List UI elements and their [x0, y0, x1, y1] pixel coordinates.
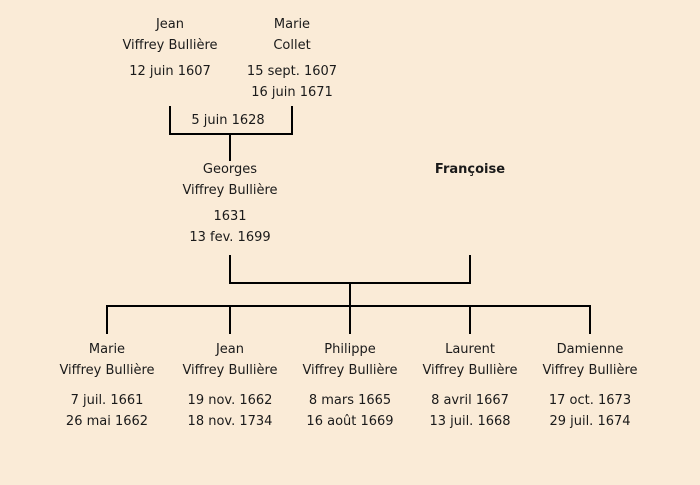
connector-francoise-drop: [469, 255, 471, 284]
connector-marie-collet-drop: [291, 106, 293, 135]
person-birth-date: 19 nov. 1662: [165, 390, 295, 411]
person-first-name: Jean: [110, 14, 230, 35]
person-last-name: Viffrey Bullière: [405, 360, 535, 381]
person-last-name: Collet: [232, 35, 352, 56]
person-first-name: Françoise: [400, 159, 540, 180]
connector-couple-to-children: [349, 284, 351, 307]
person-birth-date: 12 juin 1607: [110, 61, 230, 82]
connector-georges-drop: [229, 255, 231, 284]
person-node-francoise[interactable]: Françoise: [400, 159, 540, 180]
person-node-child-laurent[interactable]: Laurent Viffrey Bullière 8 avril 1667 13…: [405, 339, 535, 432]
person-death-date: 16 juin 1671: [232, 82, 352, 103]
person-last-name: Viffrey Bullière: [165, 360, 295, 381]
person-first-name: Georges: [160, 159, 300, 180]
person-node-georges[interactable]: Georges Viffrey Bullière 1631 13 fev. 16…: [160, 159, 300, 248]
person-first-name: Marie: [232, 14, 352, 35]
person-birth-date: 17 oct. 1673: [525, 390, 655, 411]
person-birth-date: 15 sept. 1607: [232, 61, 352, 82]
person-last-name: Viffrey Bullière: [285, 360, 415, 381]
person-birth-date: 8 mars 1665: [285, 390, 415, 411]
person-first-name: Philippe: [285, 339, 415, 360]
person-death-date: 26 mai 1662: [42, 411, 172, 432]
family-tree-canvas: Jean Viffrey Bullière 12 juin 1607 Marie…: [0, 0, 700, 485]
person-last-name: Viffrey Bullière: [42, 360, 172, 381]
person-death-date: 18 nov. 1734: [165, 411, 295, 432]
person-birth-date: 7 juil. 1661: [42, 390, 172, 411]
person-first-name: Jean: [165, 339, 295, 360]
person-death-date: 29 juil. 1674: [525, 411, 655, 432]
person-death-date: 13 juil. 1668: [405, 411, 535, 432]
marriage-date-label[interactable]: 5 juin 1628: [167, 112, 289, 130]
person-last-name: Viffrey Bullière: [110, 35, 230, 56]
person-last-name: Viffrey Bullière: [525, 360, 655, 381]
person-node-jean-sr[interactable]: Jean Viffrey Bullière 12 juin 1607: [110, 14, 230, 82]
person-node-marie-collet[interactable]: Marie Collet 15 sept. 1607 16 juin 1671: [232, 14, 352, 103]
person-first-name: Damienne: [525, 339, 655, 360]
connector-georges-parent-drop: [229, 135, 231, 161]
person-death-date: 16 août 1669: [285, 411, 415, 432]
person-birth-date: 8 avril 1667: [405, 390, 535, 411]
person-first-name: Laurent: [405, 339, 535, 360]
person-first-name: Marie: [42, 339, 172, 360]
connector-child-5-drop: [589, 307, 591, 334]
connector-child-2-drop: [229, 307, 231, 334]
person-node-child-marie[interactable]: Marie Viffrey Bullière 7 juil. 1661 26 m…: [42, 339, 172, 432]
person-node-child-philippe[interactable]: Philippe Viffrey Bullière 8 mars 1665 16…: [285, 339, 415, 432]
connector-child-4-drop: [469, 307, 471, 334]
person-node-child-damienne[interactable]: Damienne Viffrey Bullière 17 oct. 1673 2…: [525, 339, 655, 432]
connector-marriage-bar: [169, 133, 293, 135]
person-death-date: 13 fev. 1699: [160, 227, 300, 248]
connector-child-1-drop: [106, 307, 108, 334]
connector-child-3-drop: [349, 307, 351, 334]
person-birth-date: 1631: [160, 206, 300, 227]
person-last-name: Viffrey Bullière: [160, 180, 300, 201]
person-node-child-jean[interactable]: Jean Viffrey Bullière 19 nov. 1662 18 no…: [165, 339, 295, 432]
